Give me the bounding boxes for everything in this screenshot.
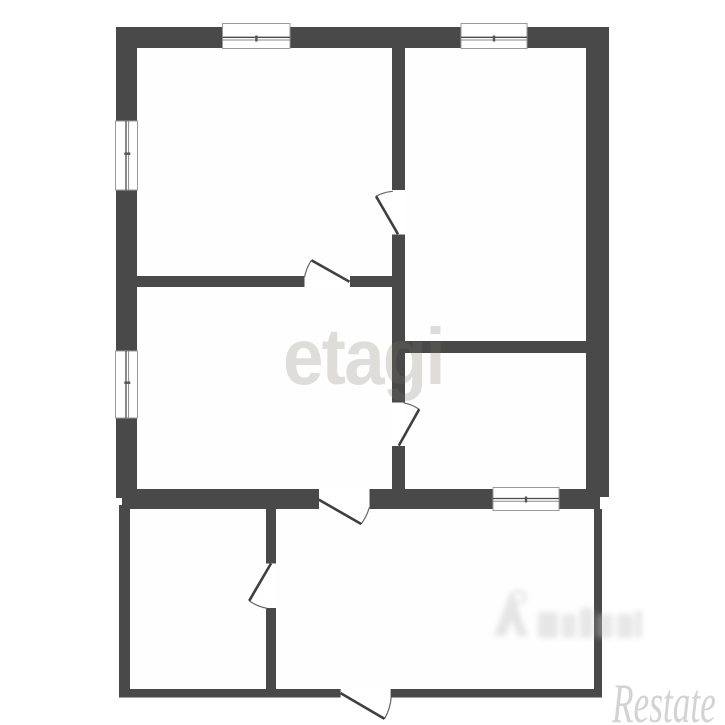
svg-text:etagi: etagi xyxy=(283,313,444,402)
svg-text:Restate: Restate xyxy=(611,673,716,725)
